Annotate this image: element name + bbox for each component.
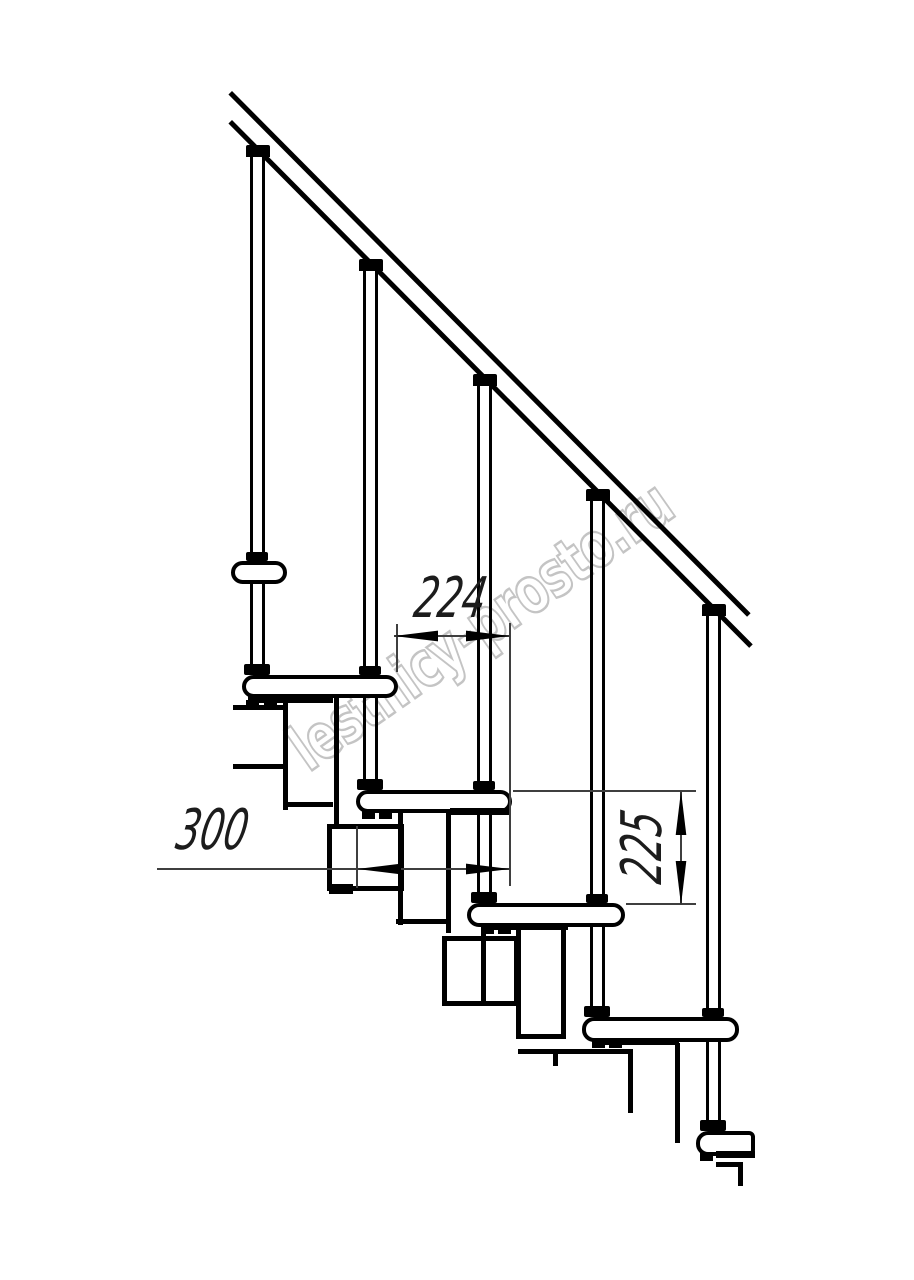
arrowhead-left (357, 862, 401, 876)
extension-line (356, 826, 358, 888)
arrowhead-up (674, 791, 688, 835)
arrowhead-right (466, 629, 510, 643)
arrowhead-down (674, 861, 688, 905)
extension-line (626, 903, 696, 905)
extension-line (396, 624, 398, 672)
extension-line (513, 790, 696, 792)
dimension-layer: 224 300 225 (0, 0, 914, 1280)
dimension-depth-value: 300 (173, 806, 245, 856)
dimension-rise-value: 225 (618, 812, 668, 887)
staircase-drawing: lestnicy-prosto.ru (0, 0, 914, 1280)
dimension-line (157, 868, 510, 870)
extension-line (509, 623, 511, 886)
dimension-run-value: 224 (411, 574, 483, 624)
arrowhead-right (466, 862, 510, 876)
arrowhead-left (394, 629, 438, 643)
